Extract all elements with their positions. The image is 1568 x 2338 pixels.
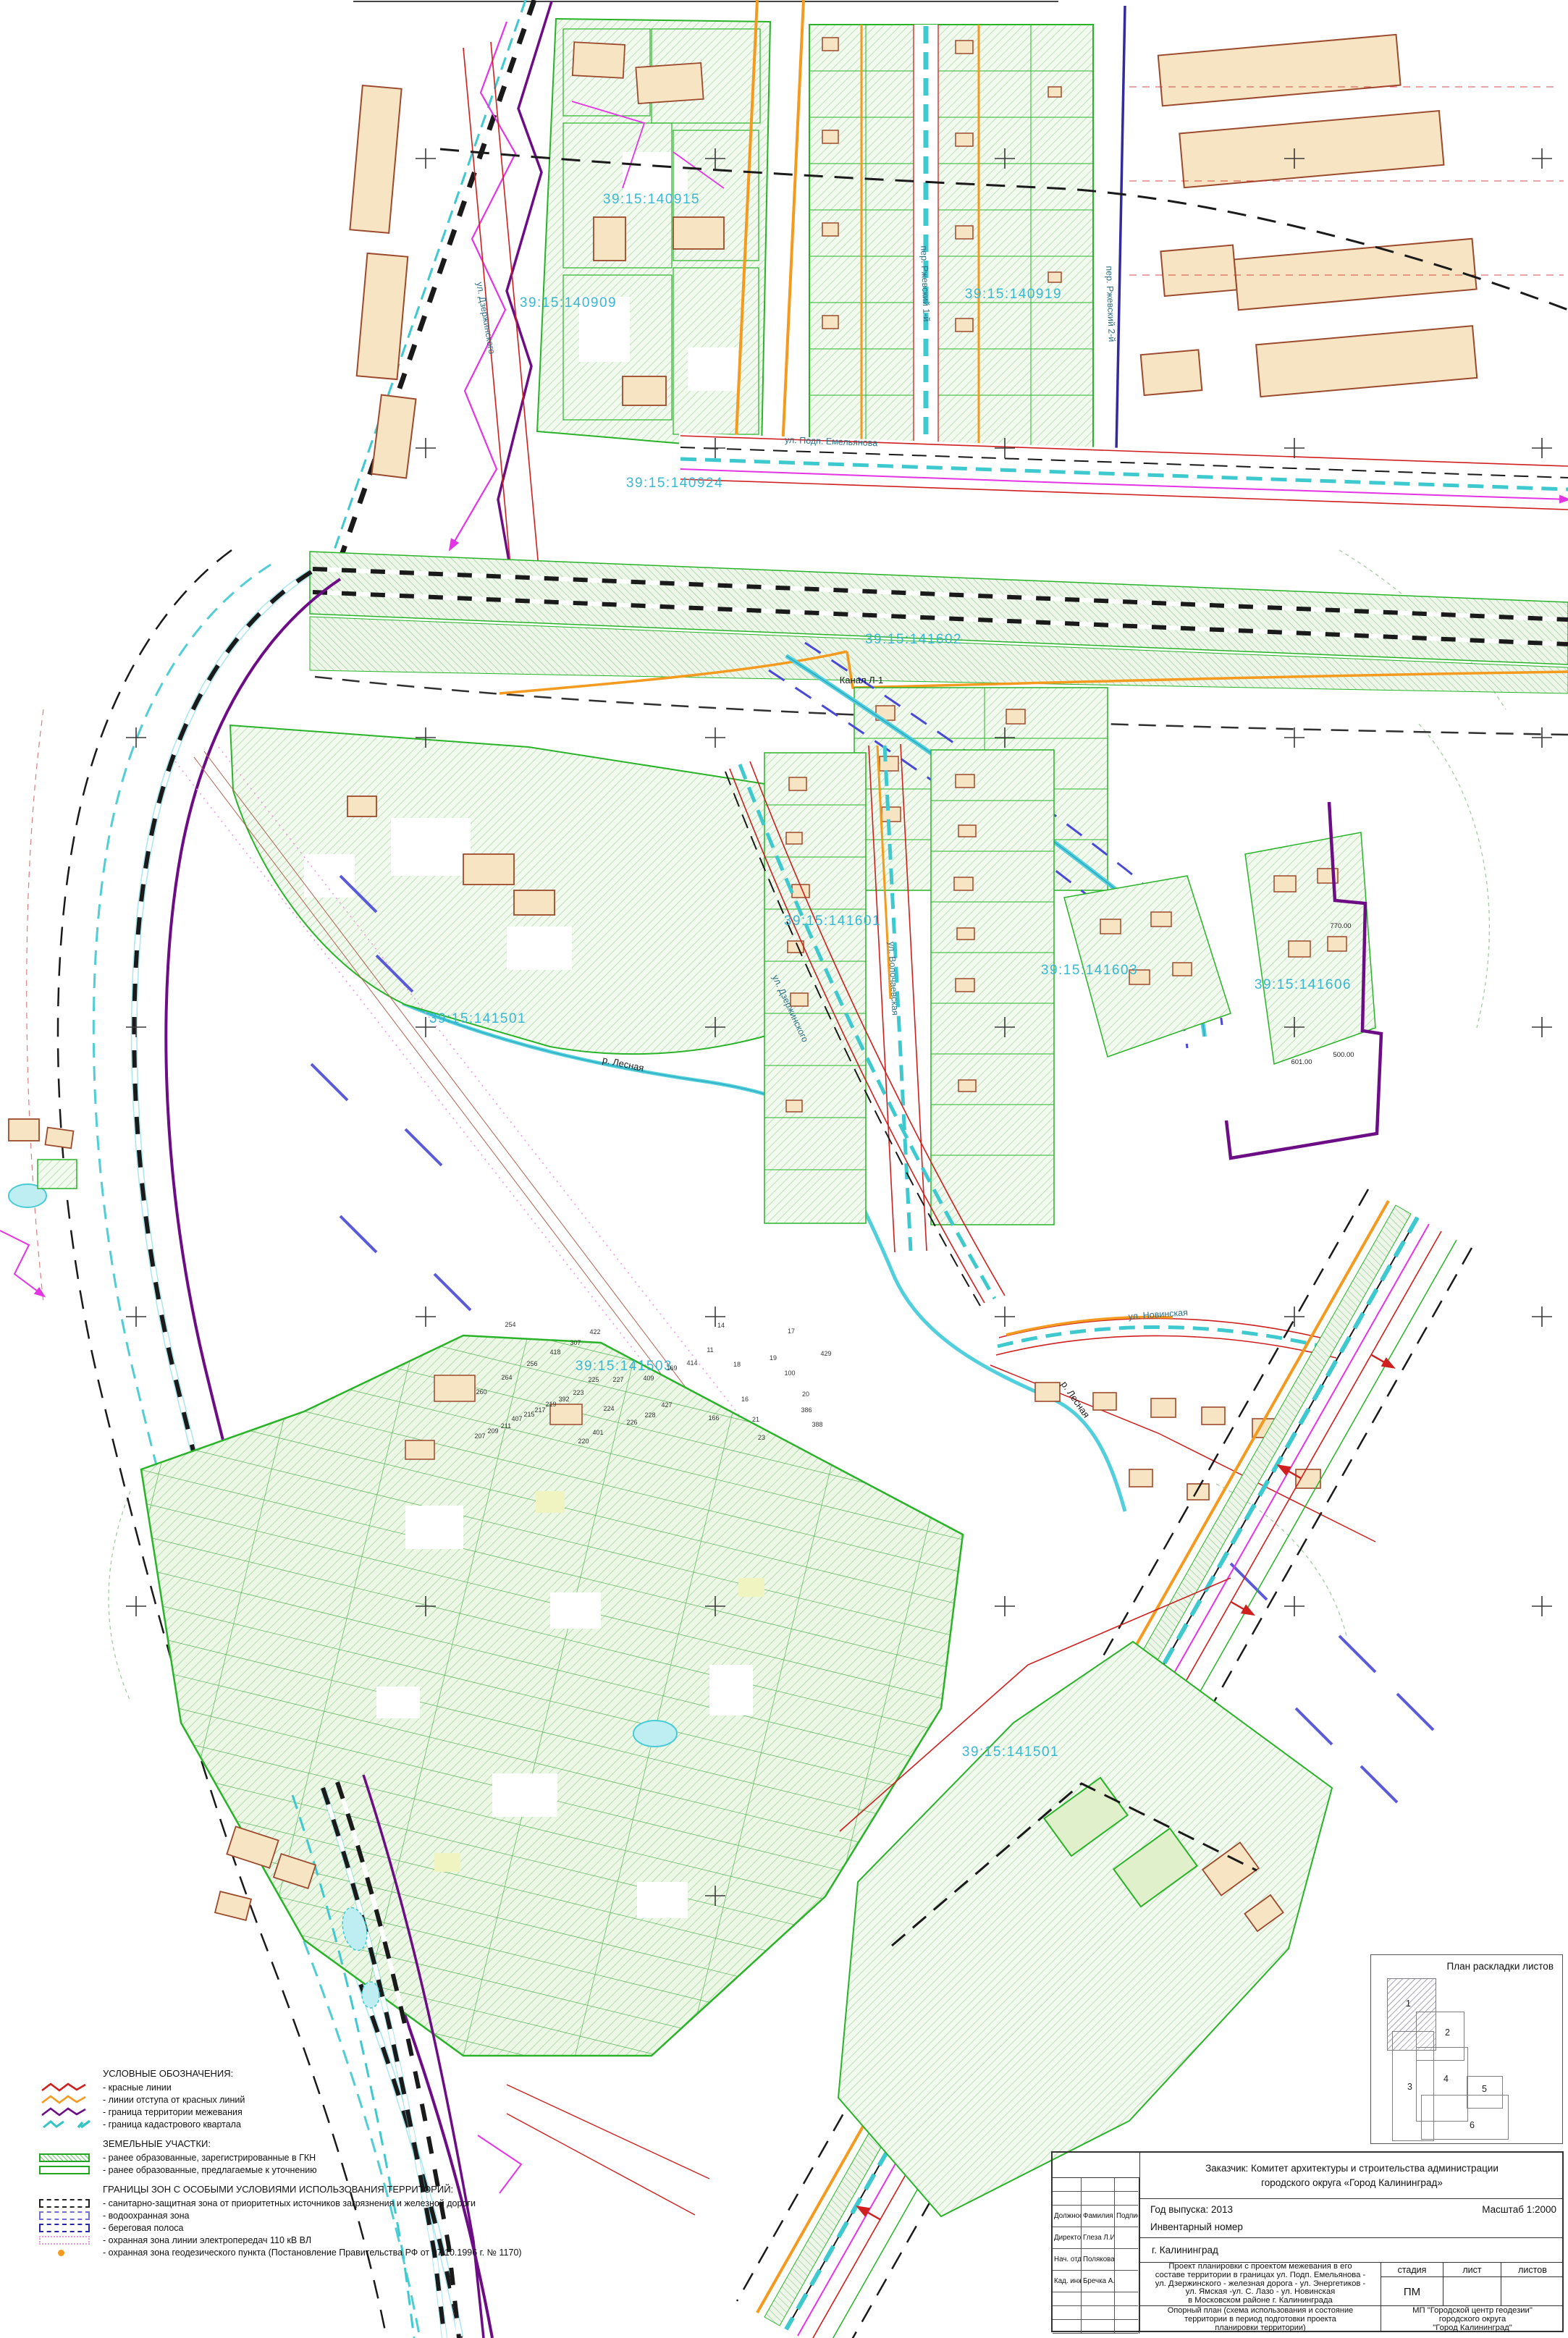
- dimension-label: 601.00: [1291, 1058, 1312, 1066]
- project-line: составе территории в границах ул. Подп. …: [1155, 2271, 1366, 2280]
- map-scale: Масштаб 1:2000: [1482, 2204, 1556, 2215]
- legend-symbol: [32, 2166, 103, 2174]
- parcel-number: 207: [474, 1432, 485, 1440]
- org-line: "Город Калининград": [1433, 2324, 1512, 2332]
- doc-line: Опорный план (схема использования и сост…: [1168, 2306, 1353, 2315]
- org-line: городского округа: [1439, 2315, 1506, 2324]
- legend-item-label: - санитарно-защитная зона от приоритетны…: [103, 2198, 476, 2208]
- quarter-label: 39:15:140919: [965, 287, 1062, 302]
- sign-header-cell: Фамилия: [1082, 2206, 1115, 2227]
- parcel-number: 220: [578, 1438, 589, 1445]
- legend-item: - береговая полоса: [32, 2222, 597, 2234]
- quarter-label: 39:15:141603: [1041, 963, 1138, 978]
- parcel-number: 166: [708, 1414, 719, 1422]
- legend-item: - красные линии: [32, 2082, 597, 2093]
- parcel-number: 23: [758, 1434, 765, 1441]
- quarter-label: 39:15:140924: [626, 476, 723, 491]
- legend-item: - линии отступа от красных линий: [32, 2094, 597, 2106]
- block-140915-grid: [809, 25, 1093, 450]
- sign-cell: [1082, 2306, 1115, 2320]
- customer-line2: городского округа «Город Калининград»: [1261, 2176, 1443, 2190]
- sign-cell: [1115, 2249, 1138, 2271]
- sheet-value-empty: [1443, 2277, 1501, 2306]
- legend-parcels-title: ЗЕМЕЛЬНЫЕ УЧАСТКИ:: [103, 2138, 597, 2149]
- parcel-number: 14: [717, 1322, 725, 1329]
- org-line: МП "Городской центр геодезии": [1412, 2306, 1533, 2315]
- legend-item: - охранная зона геодезического пункта (П…: [32, 2247, 597, 2258]
- sign-cell: [1115, 2178, 1138, 2192]
- sign-cell: [1115, 2227, 1138, 2249]
- legend-item-label: - охранная зона линии электропередач 110…: [103, 2235, 311, 2245]
- parcel-number: 209: [487, 1427, 498, 1435]
- legend-symbol: [32, 2094, 103, 2106]
- sign-cell: [1082, 2192, 1115, 2206]
- title-block: Заказчик: Комитет архитектуры и строител…: [1051, 2151, 1564, 2332]
- parcel-number: 219: [545, 1401, 556, 1408]
- legend-item-label: - ранее образованные, зарегистрированные…: [103, 2153, 316, 2163]
- parcel-number: 100: [784, 1370, 795, 1377]
- parcel-number: 226: [626, 1419, 637, 1426]
- sign-cell: [1082, 2178, 1115, 2192]
- parcel-number: 224: [603, 1405, 614, 1412]
- legend-item-label: - береговая полоса: [103, 2223, 183, 2233]
- parcel-number: 21: [752, 1416, 759, 1423]
- legend-item: - водоохранная зона: [32, 2210, 597, 2221]
- parcel-number: 409: [643, 1375, 654, 1382]
- customer-line1: Заказчик: Комитет архитектуры и строител…: [1205, 2161, 1499, 2176]
- doc-line: планировки территории): [1215, 2324, 1305, 2332]
- sign-header-cell: Подпись: [1115, 2206, 1138, 2227]
- project-description: Проект планировки с проектом межевания в…: [1139, 2263, 1381, 2306]
- sheet-number-3: 3: [1407, 2082, 1412, 2092]
- sheet-number-2: 2: [1445, 2027, 1450, 2038]
- city-cell: г. Калининград: [1139, 2238, 1564, 2263]
- parcel-number: 227: [612, 1376, 623, 1383]
- water-label: Канал Л-1: [840, 675, 884, 685]
- block-140909-140915: [537, 19, 770, 450]
- legend-item: - граница кадастрового квартала: [32, 2119, 597, 2130]
- parcel-number: 18: [733, 1361, 741, 1368]
- sign-cell: Полякова Л.П.: [1082, 2249, 1115, 2271]
- sheet-rect-6: [1421, 2095, 1509, 2140]
- parcel-number: 228: [644, 1411, 655, 1419]
- parcel-number: 427: [661, 1401, 672, 1409]
- sign-cell: [1053, 2320, 1082, 2334]
- plan-sheet: { "legend": { "title": "УСЛОВНЫЕ ОБОЗНАЧ…: [0, 0, 1568, 2338]
- parcel-number: 169: [666, 1364, 677, 1372]
- parcel-number: 401: [592, 1429, 603, 1436]
- sign-cell: [1115, 2292, 1138, 2306]
- sign-cell: [1053, 2178, 1082, 2192]
- parcel-number: 392: [558, 1396, 569, 1403]
- map-canvas: 39:15:14091539:15:14090939:15:14091939:1…: [0, 0, 1568, 2338]
- sign-cell: [1115, 2192, 1138, 2206]
- sheet-number-1: 1: [1406, 1999, 1411, 2009]
- legend-item: - санитарно-защитная зона от приоритетны…: [32, 2198, 597, 2209]
- quarter-label: 39:15:140915: [603, 192, 700, 207]
- quarter-label: 39:15:141501: [429, 1011, 526, 1026]
- doc-line: территории в период подготовки проекта: [1184, 2315, 1336, 2324]
- project-line: в Московском районе г. Калининграда: [1188, 2297, 1333, 2305]
- legend-item: - охранная зона линии электропередач 110…: [32, 2234, 597, 2246]
- legend-item: - ранее образованные, предлагаемые к уто…: [32, 2164, 597, 2176]
- parcel-number: 407: [511, 1415, 522, 1422]
- legend-item-label: - охранная зона геодезического пункта (П…: [103, 2248, 522, 2258]
- parcel-number: 386: [801, 1406, 812, 1414]
- parcel-number: 225: [588, 1376, 599, 1383]
- parcel-number: 418: [549, 1349, 560, 1356]
- parcel-number: 414: [686, 1359, 697, 1367]
- legend: УСЛОВНЫЕ ОБОЗНАЧЕНИЯ: - красные линии- л…: [32, 2060, 597, 2259]
- sheet-number-4: 4: [1443, 2074, 1449, 2084]
- legend-symbol: [32, 2199, 103, 2208]
- sign-cell: [1082, 2320, 1115, 2334]
- sign-cell: Директор: [1053, 2227, 1082, 2249]
- legend-item: - ранее образованные, зарегистрированные…: [32, 2152, 597, 2164]
- sign-cell: Кад. инженер: [1053, 2271, 1082, 2292]
- dimension-label: 770.00: [1330, 922, 1351, 930]
- sign-cell: Глеза Л.И.: [1082, 2227, 1115, 2249]
- sheet-header: лист: [1443, 2263, 1501, 2277]
- sheets-header: листов: [1501, 2263, 1564, 2277]
- legend-item-label: - граница кадастрового квартала: [103, 2119, 241, 2130]
- legend-symbol: [32, 2119, 103, 2130]
- year-of-issue: Год выпуска: 2013: [1150, 2204, 1233, 2215]
- legend-item: - граница территории межевания: [32, 2106, 597, 2118]
- parcel-number: 19: [770, 1354, 777, 1362]
- sheet-number-6: 6: [1470, 2120, 1475, 2130]
- legend-symbol: [32, 2224, 103, 2232]
- sign-cell: [1053, 2306, 1082, 2320]
- quarter-label: 39:15:141602: [865, 632, 962, 647]
- parcel-number: 429: [820, 1350, 831, 1357]
- parcel-number: 260: [476, 1388, 486, 1396]
- parcel-number: 11: [707, 1346, 713, 1354]
- sign-cell: [1115, 2271, 1138, 2292]
- legend-symbol: [32, 2211, 103, 2220]
- sign-cell: [1053, 2192, 1082, 2206]
- sheet-number-5: 5: [1482, 2084, 1487, 2094]
- sign-cell: [1115, 2306, 1138, 2320]
- legend-item-label: - линии отступа от красных линий: [103, 2095, 245, 2105]
- parcel-number: 254: [505, 1321, 515, 1328]
- parcel-number: 17: [788, 1328, 795, 1335]
- customer-cell: Заказчик: Комитет архитектуры и строител…: [1139, 2153, 1564, 2199]
- sign-cell: Нач. отдела: [1053, 2249, 1082, 2271]
- sign-cell: Бречка А.Ф.: [1082, 2271, 1115, 2292]
- legend-item-label: - ранее образованные, предлагаемые к уто…: [103, 2165, 317, 2175]
- legend-zones-title: ГРАНИЦЫ ЗОН С ОСОБЫМИ УСЛОВИЯМИ ИСПОЛЬЗО…: [103, 2184, 597, 2195]
- legend-item-label: - водоохранная зона: [103, 2211, 189, 2221]
- stage-header: стадия: [1381, 2263, 1443, 2277]
- parcel-number: 223: [573, 1389, 583, 1396]
- legend-item-label: - граница территории межевания: [103, 2107, 243, 2117]
- legend-body: - красные линии- линии отступа от красны…: [32, 2082, 597, 2258]
- parcel-number: 388: [812, 1421, 822, 1428]
- legend-item-label: - красные линии: [103, 2082, 172, 2093]
- sign-cell: [1115, 2320, 1138, 2334]
- parcel-number: 215: [523, 1411, 534, 1418]
- quarter-label: 39:15:141606: [1255, 977, 1352, 992]
- inventory-number: Инвентарный номер: [1150, 2221, 1243, 2232]
- sign-cell: [1053, 2292, 1082, 2306]
- parcel-number: 20: [802, 1390, 809, 1398]
- sheet-layout-plan: План раскладки листов 1 2 3 4 5 6: [1370, 1954, 1563, 2144]
- parcel-number: 307: [570, 1339, 581, 1346]
- parcel-number: 256: [526, 1360, 537, 1367]
- quarter-label: 39:15:141501: [962, 1744, 1059, 1760]
- legend-symbol: [32, 2106, 103, 2118]
- meta-cell: Год выпуска: 2013 Масштаб 1:2000 Инвента…: [1139, 2199, 1564, 2238]
- organization: МП "Городской центр геодезии"городского …: [1381, 2306, 1564, 2332]
- parcel-number: 264: [501, 1374, 512, 1381]
- sign-header-cell: Должность: [1053, 2206, 1082, 2227]
- signature-table: ДолжностьФамилияПодписьДиректорГлеза Л.И…: [1053, 2177, 1139, 2334]
- document-name: Опорный план (схема использования и сост…: [1139, 2306, 1381, 2332]
- parcel-number: 16: [741, 1396, 749, 1403]
- parcel-number: 422: [589, 1328, 600, 1335]
- legend-symbol: [32, 2250, 103, 2256]
- signature-grid: ДолжностьФамилияПодписьДиректорГлеза Л.И…: [1053, 2178, 1139, 2334]
- legend-symbol: [32, 2236, 103, 2245]
- quarter-label: 39:15:141601: [784, 913, 881, 929]
- dimension-label: 500.00: [1333, 1051, 1354, 1059]
- quarter-label: 39:15:141503: [576, 1359, 673, 1374]
- legend-symbol: [32, 2153, 103, 2162]
- stage-value: ПМ: [1381, 2277, 1443, 2306]
- parcel-number: 217: [534, 1406, 545, 1414]
- legend-title: УСЛОВНЫЕ ОБОЗНАЧЕНИЯ:: [103, 2068, 597, 2079]
- stage-table: стадия лист листов ПМ: [1381, 2263, 1564, 2306]
- parcel-number: 211: [501, 1422, 511, 1430]
- sheet-plan-title: План раскладки листов: [1447, 1961, 1554, 1972]
- sign-cell: [1082, 2292, 1115, 2306]
- legend-symbol: [32, 2082, 103, 2093]
- quarter-label: 39:15:140909: [520, 295, 617, 311]
